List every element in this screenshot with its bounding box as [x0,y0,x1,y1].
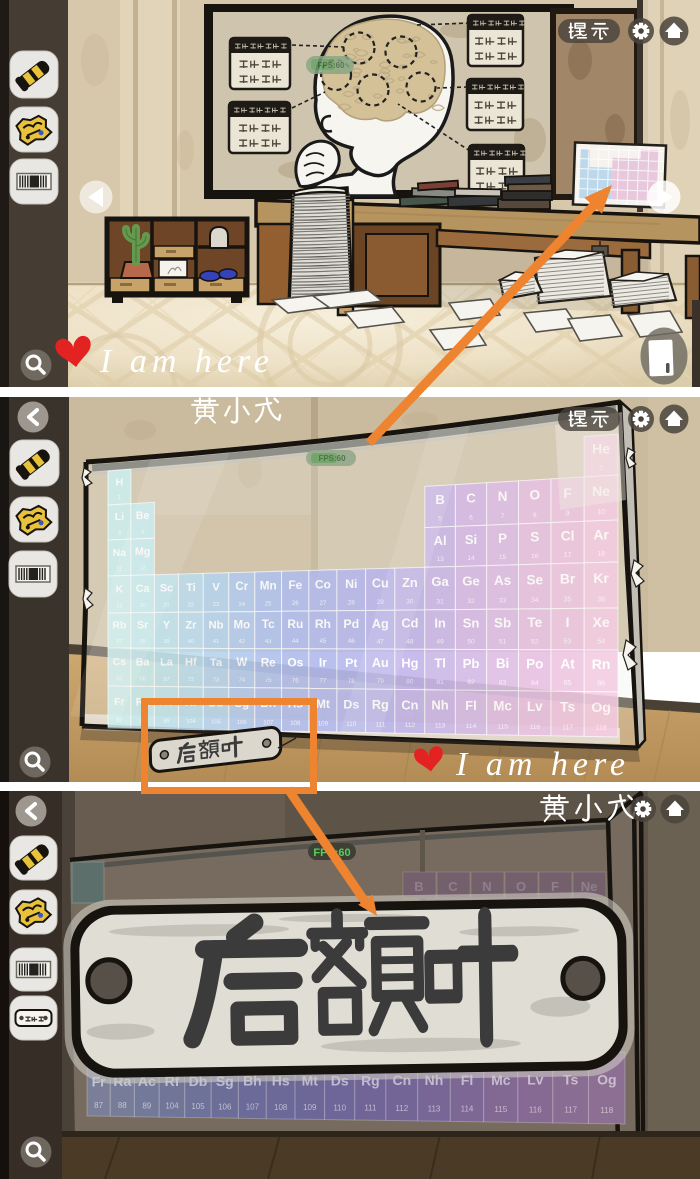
svg-text:115: 115 [494,1105,507,1114]
svg-text:108: 108 [290,720,301,727]
svg-text:Ru: Ru [287,617,303,631]
svg-text:Ta: Ta [210,657,223,669]
svg-text:Os: Os [287,656,303,670]
svg-text:43: 43 [265,639,272,645]
svg-text:40: 40 [188,639,194,645]
svg-text:FPS:60: FPS:60 [317,61,345,70]
svg-text:8: 8 [533,512,537,519]
svg-text:Kr: Kr [593,570,609,586]
svg-text:52: 52 [531,639,539,646]
svg-text:108: 108 [274,1103,288,1112]
svg-text:Tl: Tl [434,656,446,671]
svg-text:Ir: Ir [319,656,327,670]
svg-text:78: 78 [348,678,356,685]
svg-text:C: C [466,491,476,506]
svg-text:81: 81 [436,679,444,686]
svg-text:104: 104 [165,1102,179,1111]
svg-text:82: 82 [467,679,475,686]
svg-text:Zr: Zr [185,619,197,631]
svg-text:S: S [530,530,539,545]
svg-text:Pd: Pd [343,617,359,631]
svg-text:Y: Y [163,620,171,632]
svg-text:44: 44 [292,638,299,645]
svg-text:Tc: Tc [262,618,275,631]
svg-text:Ga: Ga [431,574,449,589]
svg-text:In: In [434,616,446,631]
svg-text:114: 114 [466,723,477,730]
svg-text:113: 113 [435,722,446,729]
svg-text:Og: Og [591,699,610,715]
svg-text:Cn: Cn [401,697,418,712]
svg-text:Ni: Ni [345,577,357,591]
svg-text:O: O [516,879,526,894]
svg-text:Ne: Ne [581,879,598,894]
svg-text:31: 31 [436,598,444,605]
svg-text:F: F [551,879,559,894]
svg-text:107: 107 [246,1103,260,1112]
svg-text:Mo: Mo [233,619,250,631]
svg-text:B: B [414,879,423,894]
svg-text:34: 34 [531,597,539,604]
svg-text:Cl: Cl [561,529,575,544]
svg-text:Ti: Ti [186,582,196,594]
svg-text:77: 77 [319,678,326,685]
svg-text:Re: Re [261,656,276,669]
svg-text:117: 117 [562,724,573,731]
svg-text:Bi: Bi [496,656,509,671]
svg-text:26: 26 [292,600,299,607]
svg-text:I am here: I am here [99,343,274,380]
svg-text:118: 118 [600,1106,613,1115]
svg-text:Rh: Rh [315,617,331,631]
svg-text:N: N [482,879,491,894]
svg-text:Nb: Nb [208,619,223,631]
svg-text:6: 6 [469,514,473,521]
svg-text:80: 80 [406,679,414,686]
svg-text:116: 116 [529,1105,542,1114]
svg-text:I: I [566,615,570,630]
svg-text:Hf: Hf [185,657,197,669]
svg-text:27: 27 [319,600,326,607]
svg-text:107: 107 [263,720,274,726]
svg-text:111: 111 [364,1104,377,1113]
svg-text:18: 18 [597,551,605,558]
svg-text:42: 42 [239,639,246,645]
svg-text:114: 114 [461,1105,474,1114]
svg-text:39: 39 [163,639,169,645]
svg-text:17: 17 [564,552,572,559]
svg-text:73: 73 [213,677,220,683]
svg-text:41: 41 [213,639,220,645]
svg-text:46: 46 [348,638,356,645]
svg-text:36: 36 [597,596,605,603]
svg-text:104: 104 [186,719,196,725]
svg-text:Ar: Ar [593,527,609,543]
svg-text:Li: Li [115,511,124,523]
svg-text:C: C [448,879,458,894]
svg-text:113: 113 [428,1104,441,1113]
svg-text:83: 83 [499,680,507,687]
svg-text:14: 14 [467,555,475,562]
svg-text:FPS:60: FPS:60 [318,454,346,463]
svg-text:Fl: Fl [465,698,477,713]
svg-text:Mt: Mt [316,697,330,711]
svg-text:115: 115 [497,723,508,730]
svg-text:Mn: Mn [260,580,277,593]
svg-text:49: 49 [436,638,444,645]
svg-text:85: 85 [564,680,572,687]
svg-text:109: 109 [303,1103,317,1112]
svg-text:As: As [494,573,511,588]
svg-text:110: 110 [333,1103,346,1112]
svg-text:56: 56 [139,677,145,683]
svg-text:16: 16 [531,553,539,560]
svg-text:50: 50 [467,638,475,645]
svg-text:Xe: Xe [593,614,610,630]
svg-text:9: 9 [566,510,570,517]
svg-text:W: W [236,657,247,669]
svg-text:117: 117 [564,1106,577,1115]
svg-text:Pb: Pb [463,656,480,671]
svg-text:89: 89 [142,1102,151,1111]
svg-text:106: 106 [218,1102,232,1111]
svg-text:22: 22 [188,602,194,608]
svg-text:54: 54 [597,639,605,646]
svg-text:I am here: I am here [455,746,630,783]
svg-text:112: 112 [395,1104,408,1113]
svg-text:Ts: Ts [560,700,575,715]
svg-text:51: 51 [499,639,507,646]
svg-text:Si: Si [465,532,477,547]
svg-text:Ge: Ge [462,574,480,589]
svg-text:74: 74 [239,678,246,684]
svg-text:28: 28 [348,599,356,606]
svg-text:Fe: Fe [288,578,302,592]
svg-text:13: 13 [436,556,444,563]
svg-text:P: P [498,531,507,546]
svg-text:Co: Co [315,578,331,592]
svg-text:1: 1 [118,495,121,501]
svg-text:10: 10 [597,509,605,516]
svg-text:Mc: Mc [493,699,512,714]
svg-text:33: 33 [499,598,507,605]
svg-text:V: V [212,582,220,594]
svg-text:35: 35 [564,597,572,604]
svg-text:116: 116 [529,724,540,731]
svg-text:87: 87 [94,1101,103,1110]
svg-text:89: 89 [163,719,169,725]
svg-text:45: 45 [319,638,326,645]
svg-text:109: 109 [318,720,329,727]
svg-text:Br: Br [560,572,576,587]
svg-text:72: 72 [188,677,194,683]
svg-text:Nh: Nh [431,698,448,713]
svg-text:105: 105 [191,1102,205,1111]
svg-text:Se: Se [526,572,543,587]
svg-text:84: 84 [531,680,539,687]
svg-text:53: 53 [564,639,572,646]
svg-text:25: 25 [265,602,272,608]
svg-text:Te: Te [527,615,542,630]
svg-text:Pt: Pt [345,656,357,670]
svg-text:7: 7 [501,513,505,520]
svg-text:Sn: Sn [463,615,480,630]
svg-text:Rn: Rn [592,656,611,672]
svg-text:La: La [160,657,174,669]
svg-text:57: 57 [163,677,169,683]
svg-text:105: 105 [211,720,222,726]
svg-text:75: 75 [265,678,272,684]
svg-text:3: 3 [118,530,121,536]
svg-text:118: 118 [596,725,607,732]
svg-text:At: At [560,657,575,672]
svg-text:24: 24 [239,602,246,608]
svg-text:O: O [530,487,541,502]
svg-text:32: 32 [467,598,475,605]
svg-text:Cr: Cr [235,581,248,593]
svg-text:88: 88 [118,1101,127,1110]
svg-text:Sb: Sb [494,615,511,630]
svg-text:Po: Po [526,656,543,671]
svg-text:Hg: Hg [401,655,418,670]
svg-text:Lv: Lv [527,699,543,714]
svg-text:76: 76 [292,677,299,684]
svg-text:H: H [116,477,124,489]
svg-text:23: 23 [213,602,220,608]
svg-text:15: 15 [499,554,507,561]
svg-text:N: N [498,489,508,504]
svg-text:106: 106 [237,720,248,726]
svg-text:86: 86 [597,681,605,688]
svg-text:112: 112 [405,722,416,729]
